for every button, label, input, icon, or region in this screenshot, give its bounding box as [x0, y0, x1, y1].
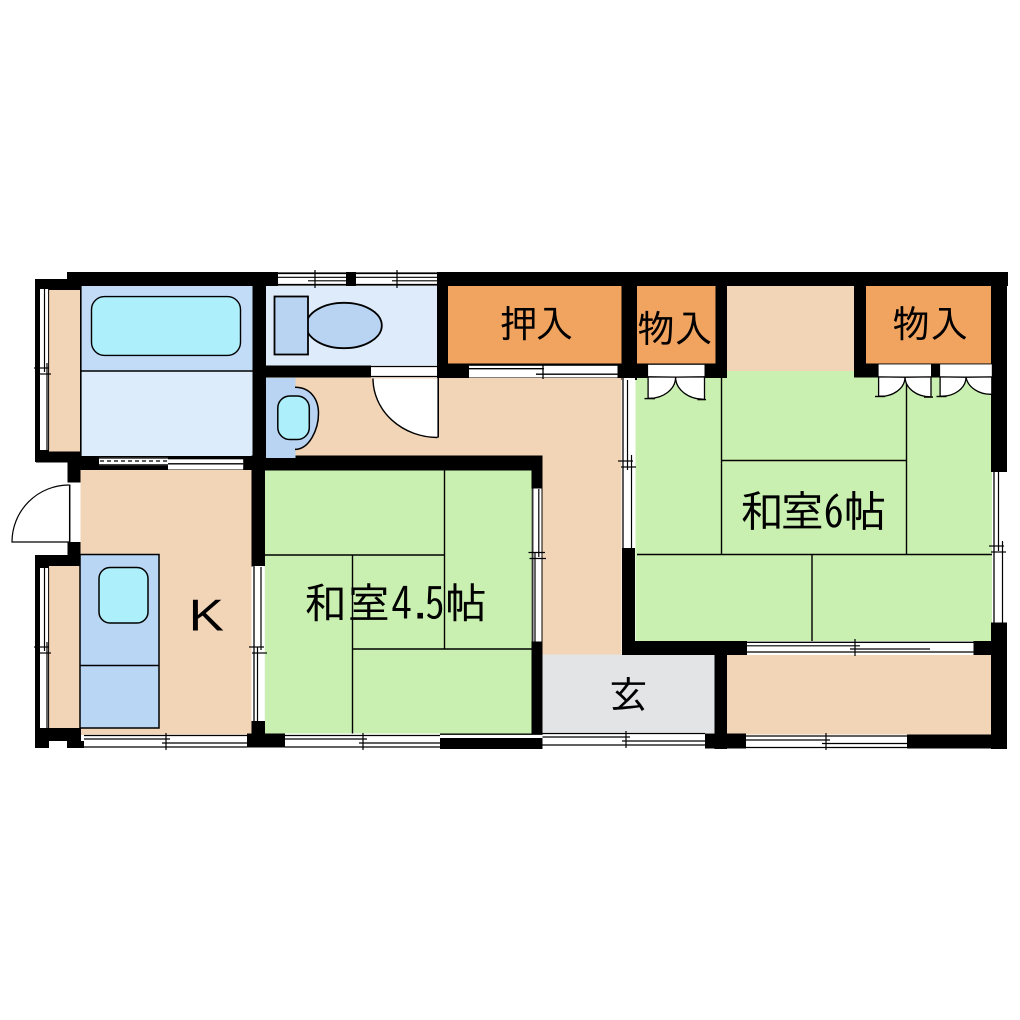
svg-text:K: K	[189, 591, 225, 640]
